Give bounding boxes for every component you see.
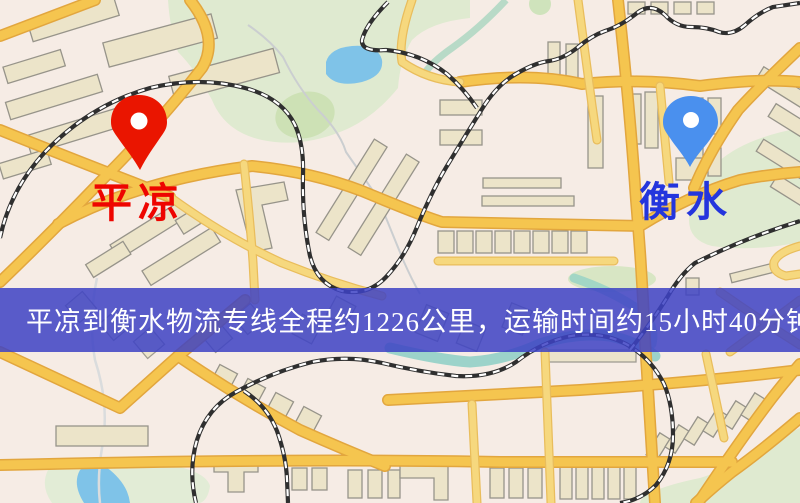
route-banner: 平凉到衡水物流专线全程约1226公里，运输时间约15小时40分钟.	[0, 288, 800, 352]
origin-pin-dot	[131, 113, 148, 130]
map-viewport[interactable]: 平凉到衡水物流专线全程约1226公里，运输时间约15小时40分钟. 平凉 衡水	[0, 0, 800, 503]
banner-text: 平凉到衡水物流专线全程约1226公里，运输时间约15小时40分钟.	[26, 307, 800, 337]
origin-label: 平凉	[91, 180, 185, 226]
destination-pin-dot	[683, 112, 699, 128]
map-canvas[interactable]: 平凉到衡水物流专线全程约1226公里，运输时间约15小时40分钟. 平凉 衡水	[0, 0, 800, 503]
destination-label: 衡水	[639, 179, 733, 225]
